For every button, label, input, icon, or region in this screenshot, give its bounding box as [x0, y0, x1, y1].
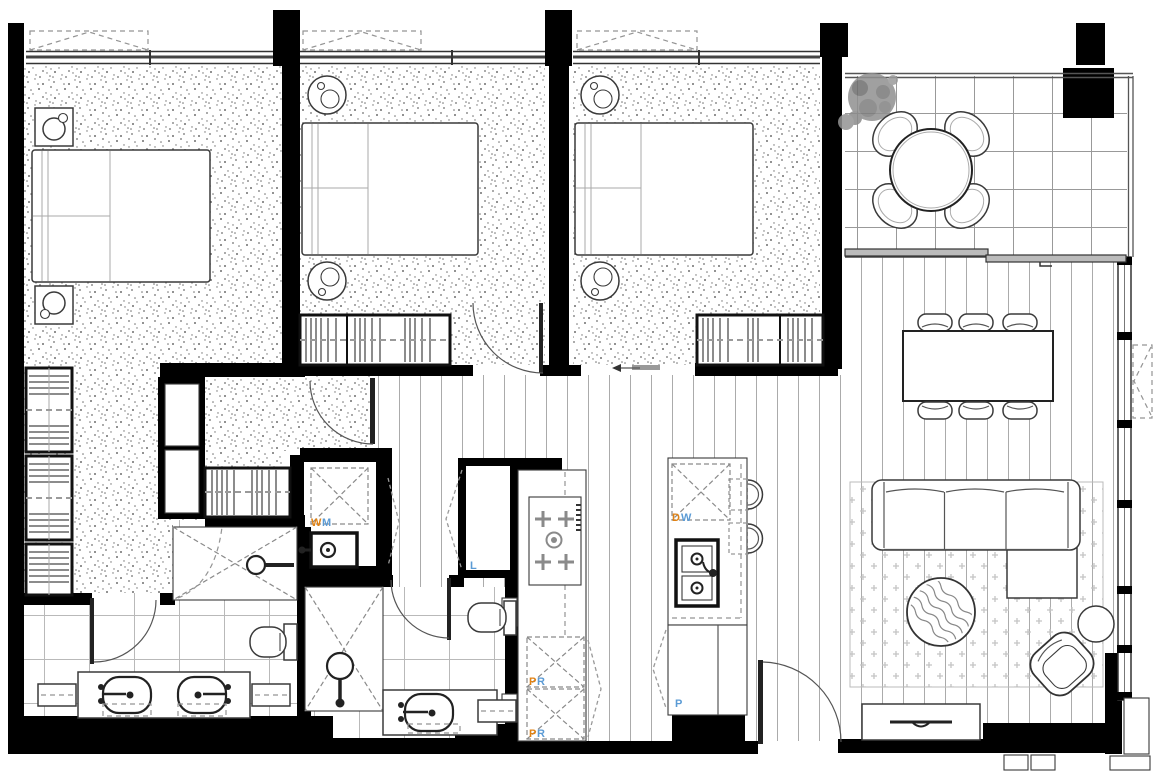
- wall-under-robe2: [292, 365, 452, 376]
- bedroom1-door-leaf: [370, 378, 375, 444]
- wall-bath2-top: [303, 575, 393, 587]
- column-balcony-top: [1076, 23, 1105, 65]
- floor-drain-icon: [247, 556, 265, 574]
- dining-area: [903, 314, 1053, 419]
- dining-chair: [918, 402, 952, 419]
- bathroom2-door-leaf: [447, 578, 451, 640]
- label-char: P: [529, 728, 536, 740]
- floor-plan: W M D W P R P R P L: [0, 0, 1155, 774]
- double-bed: [302, 123, 478, 255]
- dining-chair: [1003, 402, 1037, 419]
- balcony-table: [890, 129, 972, 211]
- towel-rail: [478, 700, 516, 722]
- column-bed1-bed2: [273, 10, 300, 66]
- lamp-icon: [321, 90, 339, 108]
- sofa-chaise: [1007, 548, 1077, 598]
- column-bed3-balcony: [820, 23, 848, 57]
- awning-window-dashed: [303, 31, 421, 50]
- label-char: R: [537, 676, 545, 688]
- lamp-icon: [41, 310, 50, 319]
- towel-rail: [38, 684, 76, 706]
- dishwasher-label: D W: [672, 512, 692, 524]
- sliding-door-arrow-icon: [612, 364, 621, 372]
- wall-bed1-bed2: [282, 62, 300, 372]
- double-vanity: [78, 672, 250, 718]
- linen-label: L: [470, 560, 477, 572]
- bedroom2-wardrobe: [300, 315, 450, 365]
- lamp-icon: [592, 289, 599, 296]
- wall-stub-bed3: [569, 365, 581, 376]
- lamp-icon: [594, 268, 612, 286]
- column-bed2-bed3: [545, 10, 572, 66]
- awning-window-dashed: [577, 31, 697, 50]
- washing-machine-label: W M: [311, 517, 331, 529]
- lamp-icon: [591, 83, 598, 90]
- wall-bottom-living-thick: [983, 723, 1105, 753]
- lamp-icon: [594, 90, 612, 108]
- fridge-recess: [672, 713, 745, 748]
- window-wall-right: [1117, 257, 1152, 700]
- dining-chair: [959, 314, 993, 331]
- lamp-icon: [59, 114, 68, 123]
- bedroom3-window: [573, 31, 820, 65]
- label-char: R: [537, 728, 545, 740]
- column-balcony-corner: [1063, 68, 1114, 118]
- dining-chair: [918, 314, 952, 331]
- label-char: M: [322, 517, 331, 529]
- wir-cabinet-2: [165, 450, 199, 513]
- openable-window-dashed: [1133, 345, 1152, 418]
- bedroom1-window: [26, 31, 273, 65]
- top-windows: [26, 31, 820, 65]
- toilet: [468, 601, 516, 635]
- ensuite-door-leaf: [90, 598, 94, 664]
- tv-unit: [862, 704, 980, 740]
- linen-cupboard-interior: [466, 466, 510, 570]
- side-table: [1078, 606, 1114, 642]
- lamp-icon: [321, 268, 339, 286]
- wall-left: [8, 23, 24, 723]
- bedroom2-window: [300, 31, 545, 65]
- lamp-icon: [319, 289, 326, 296]
- towel-rail: [252, 684, 290, 706]
- entry-door-leaf: [758, 660, 763, 744]
- lamp-icon: [318, 83, 325, 90]
- awning-window-dashed: [30, 31, 148, 50]
- label-char: W: [311, 517, 322, 529]
- pantry-lower-label: P R: [529, 728, 545, 740]
- dining-table: [903, 331, 1053, 401]
- floor-plan-page: W M D W P R P R P L: [0, 0, 1155, 774]
- shower-head-icon: [327, 653, 353, 679]
- bedroom1-nook-carpet: [282, 375, 375, 451]
- pantry-upper-label: P R: [529, 676, 545, 688]
- wall-stub-bed2-bed3: [540, 365, 572, 376]
- bedroom3-wardrobe: [697, 315, 823, 365]
- label-char: P: [529, 676, 536, 688]
- kitchen-island: [653, 458, 763, 715]
- label-char: D: [672, 512, 680, 524]
- walk-in-robe-hanging: [205, 468, 290, 517]
- dining-chair: [1003, 314, 1037, 331]
- tall-pantry-label: P: [675, 698, 682, 710]
- cooktop: [529, 497, 581, 585]
- wall-bed2-bed3: [549, 62, 569, 367]
- wall-stub-bed2-door: [450, 365, 473, 376]
- wir-cabinet-1: [165, 384, 199, 446]
- wall-bed3-living: [822, 55, 842, 369]
- label-char: W: [681, 512, 692, 524]
- double-bed: [575, 123, 753, 255]
- kitchen-sink: [676, 540, 718, 606]
- dining-chair: [959, 402, 993, 419]
- wall-wir-top: [160, 363, 305, 377]
- walk-in-robe-shelves: [26, 368, 72, 595]
- sofa: [872, 480, 1080, 550]
- wall-bottom-left: [8, 716, 333, 754]
- tap-icon: [299, 547, 306, 554]
- floor-drain-icon: [336, 699, 345, 708]
- bedroom2-door-leaf: [539, 303, 543, 373]
- toilet: [250, 624, 297, 660]
